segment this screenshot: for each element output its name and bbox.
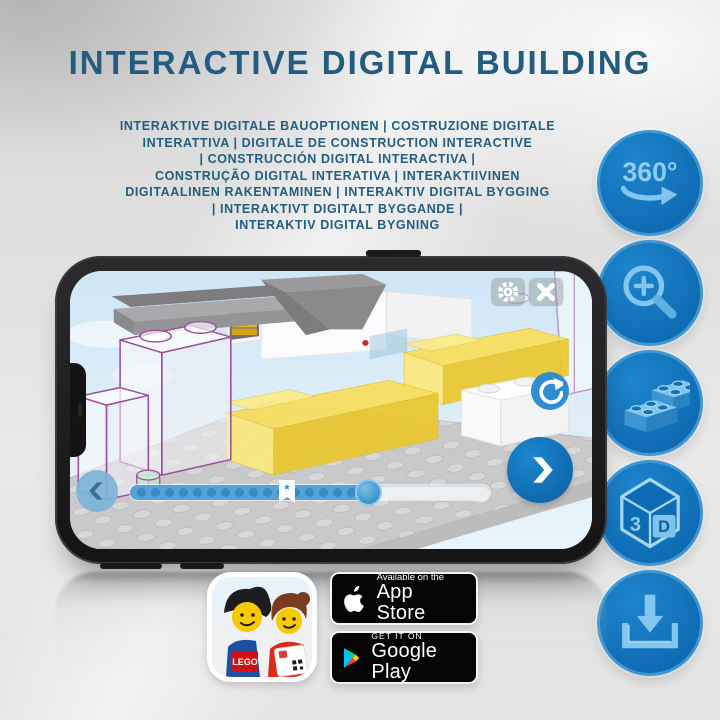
close-icon (535, 281, 557, 303)
phone-mockup: ★ (55, 256, 607, 564)
previous-step-button[interactable] (76, 470, 118, 512)
lego-app-icon[interactable]: LEGO (207, 572, 317, 682)
svg-text:360°: 360° (623, 157, 678, 187)
building-bricks-icon (610, 363, 690, 443)
subtitle-line: CONSTRUÇÃO DIGITAL INTERATIVA | INTERAKT… (40, 168, 635, 185)
app-store-badge[interactable]: Available on the App Store (330, 572, 478, 625)
download-icon (611, 584, 689, 662)
subtitle-translations: INTERAKTIVE DIGITALE BAUOPTIONEN | COSTR… (40, 118, 635, 234)
progress-dots (137, 488, 368, 497)
phone-screen: ★ (70, 271, 592, 549)
close-button[interactable] (528, 277, 564, 307)
next-step-button[interactable] (507, 437, 573, 503)
gear-icon (496, 280, 520, 304)
feature-3d: 3 D (597, 460, 703, 566)
app-store-label: App Store (377, 582, 466, 624)
page-title: INTERACTIVE DIGITAL BUILDING (0, 44, 720, 82)
phone-notch (70, 363, 86, 457)
progress-fill (130, 485, 368, 500)
rotate-icon (537, 378, 563, 404)
subtitle-line: | INTERAKTIVT DIGITALT BYGGANDE | (40, 201, 635, 218)
google-play-label: Google Play (371, 641, 466, 683)
subtitle-line: DIGITAALINEN RAKENTAMINEN | INTERAKTIV D… (40, 184, 635, 201)
progress-bar[interactable]: ★ (130, 485, 490, 500)
feature-zoom (597, 240, 703, 346)
feature-column: 360° (594, 130, 706, 680)
svg-text:3: 3 (630, 514, 641, 536)
svg-text:LEGO: LEGO (232, 657, 258, 667)
apple-icon (342, 584, 368, 614)
rotate-view-button[interactable] (531, 372, 569, 410)
phone-volume-button (180, 563, 224, 569)
subtitle-line: INTERATTIVA | DIGITALE DE CONSTRUCTION I… (40, 135, 635, 152)
svg-text:D: D (658, 518, 670, 536)
feature-bricks (597, 350, 703, 456)
subtitle-line: | CONSTRUCCIÓN DIGITAL INTERACTIVA | (40, 151, 635, 168)
lego-3d-scene (70, 271, 592, 549)
google-play-icon (342, 645, 362, 671)
settings-button[interactable] (490, 277, 526, 307)
phone-volume-button (100, 563, 162, 569)
minifigures-illustration: LEGO (212, 577, 312, 677)
3d-view-icon: 3 D (610, 473, 690, 553)
zoom-in-icon (611, 254, 689, 332)
360-rotation-icon: 360° (611, 144, 689, 222)
subtitle-line: INTERAKTIV DIGITAL BYGNING (40, 217, 635, 234)
progress-knob[interactable] (355, 479, 382, 506)
poster: INTERACTIVE DIGITAL BUILDING INTERAKTIVE… (0, 0, 720, 720)
google-play-badge[interactable]: GET IT ON Google Play (330, 631, 478, 684)
subtitle-line: INTERAKTIVE DIGITALE BAUOPTIONEN | COSTR… (40, 118, 635, 135)
feature-download (597, 570, 703, 676)
feature-360: 360° (597, 130, 703, 236)
chevron-right-icon (523, 453, 557, 487)
phone-power-button (366, 250, 421, 257)
chevron-left-icon (86, 480, 108, 502)
